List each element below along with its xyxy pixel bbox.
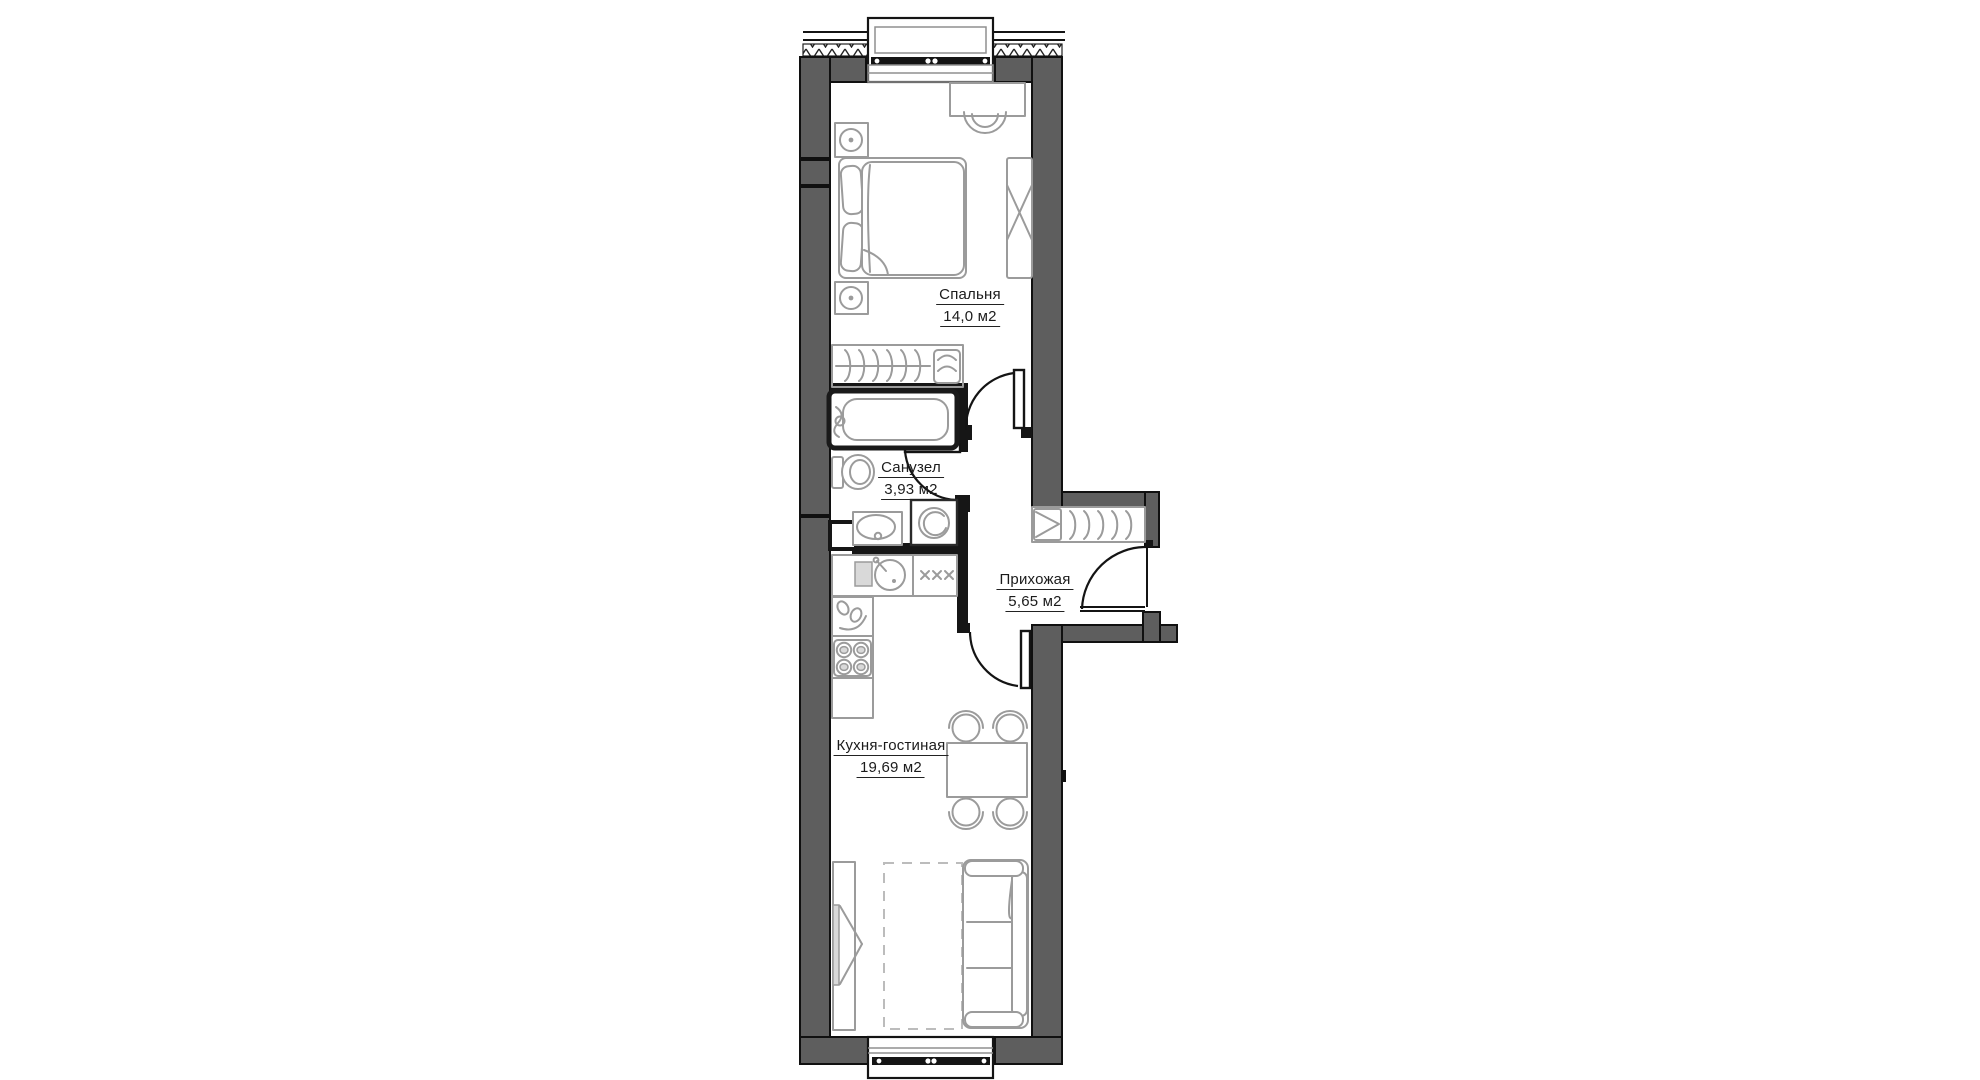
hallway-closet-icon — [1032, 507, 1145, 542]
room-label-kitchen-living: Кухня-гостиная 19,69 м2 — [834, 737, 949, 778]
room-name: Санузел — [878, 459, 944, 478]
appliance-unit-icon — [913, 555, 957, 596]
tv-console-icon — [833, 862, 862, 1030]
floor-plan-drawing — [0, 0, 1980, 1080]
nightstand-icon — [835, 282, 868, 314]
toilet-icon — [832, 455, 874, 489]
dining-table-icon — [947, 743, 1027, 797]
balcony-door-bottom-icon — [868, 1037, 993, 1078]
entrance-door-icon — [1082, 547, 1147, 609]
sink-icon — [853, 512, 902, 545]
kitchen-door-icon — [970, 631, 1030, 688]
bathtub-icon — [829, 391, 957, 448]
room-label-bedroom: Спальня 14,0 м2 — [936, 286, 1004, 327]
sliding-wardrobe-icon — [1007, 158, 1032, 278]
room-area: 19,69 м2 — [857, 759, 925, 778]
floor-plan-page: Спальня 14,0 м2 Санузел 3,93 м2 Прихожая… — [0, 0, 1980, 1080]
closet-hangers-icon — [832, 345, 963, 387]
washing-machine-icon — [911, 500, 957, 545]
rug-icon — [884, 863, 962, 1029]
kitchen-counter-icon — [832, 555, 913, 596]
room-name: Прихожая — [996, 571, 1073, 590]
balcony-door-top-icon — [868, 18, 993, 82]
sofa-icon — [963, 860, 1028, 1028]
room-name: Кухня-гостиная — [834, 737, 949, 756]
desk-icon — [950, 83, 1025, 133]
counter-left-icon — [832, 597, 873, 718]
nightstand-icon — [835, 123, 868, 157]
bedroom-door-icon — [966, 370, 1024, 430]
cooktop-icon — [834, 640, 871, 676]
room-area: 14,0 м2 — [940, 308, 999, 327]
room-area: 3,93 м2 — [881, 481, 940, 500]
room-name: Спальня — [936, 286, 1004, 305]
double-bed-icon — [839, 158, 966, 278]
room-label-bathroom: Санузел 3,93 м2 — [878, 459, 944, 500]
room-label-hallway: Прихожая 5,65 м2 — [996, 571, 1073, 612]
room-area: 5,65 м2 — [1005, 593, 1064, 612]
